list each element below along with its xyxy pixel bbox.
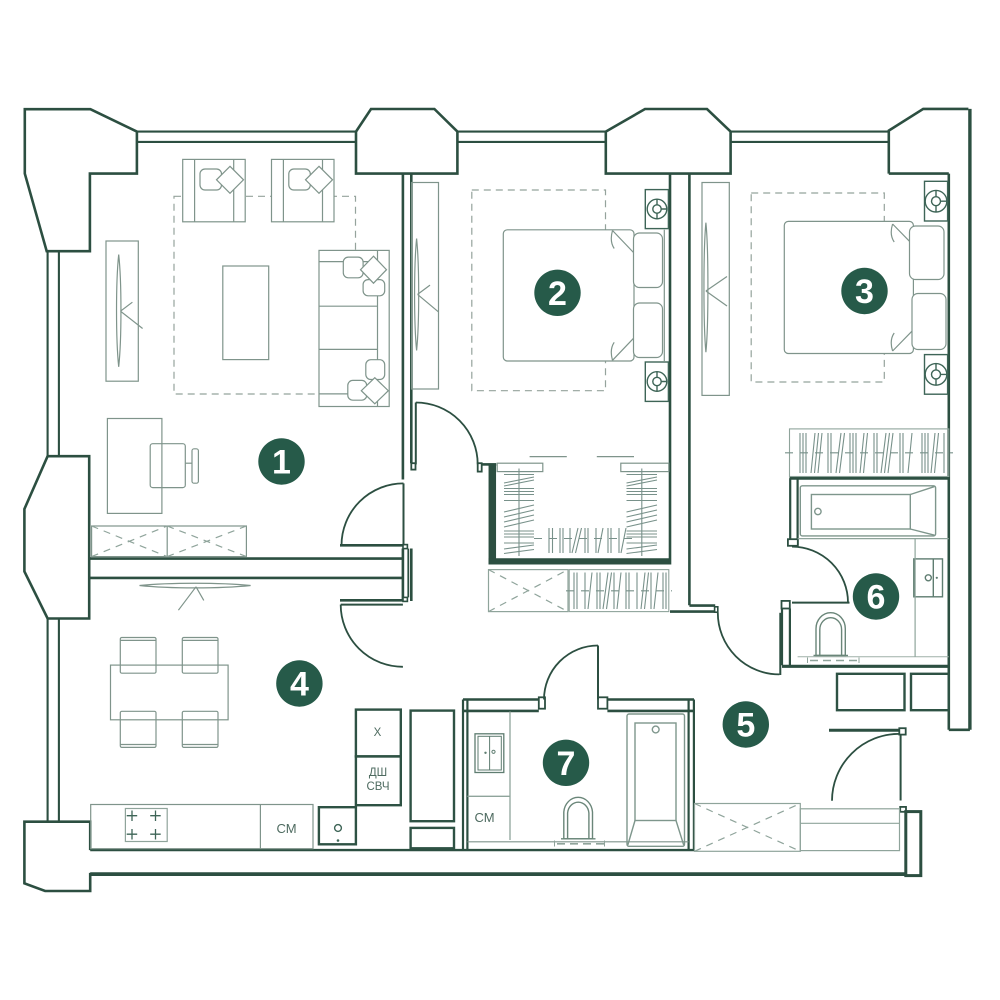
svg-text:4: 4: [290, 666, 309, 704]
svg-text:СВЧ: СВЧ: [366, 781, 389, 793]
svg-text:X: X: [374, 727, 382, 739]
svg-text:7: 7: [557, 745, 576, 783]
svg-text:2: 2: [548, 275, 567, 313]
svg-text:1: 1: [272, 444, 291, 482]
svg-text:6: 6: [867, 579, 886, 617]
svg-text:СМ: СМ: [276, 821, 296, 836]
svg-text:5: 5: [736, 707, 755, 745]
svg-text:СМ: СМ: [474, 810, 494, 825]
svg-text:ДШ: ДШ: [369, 767, 387, 779]
svg-text:3: 3: [855, 273, 874, 311]
